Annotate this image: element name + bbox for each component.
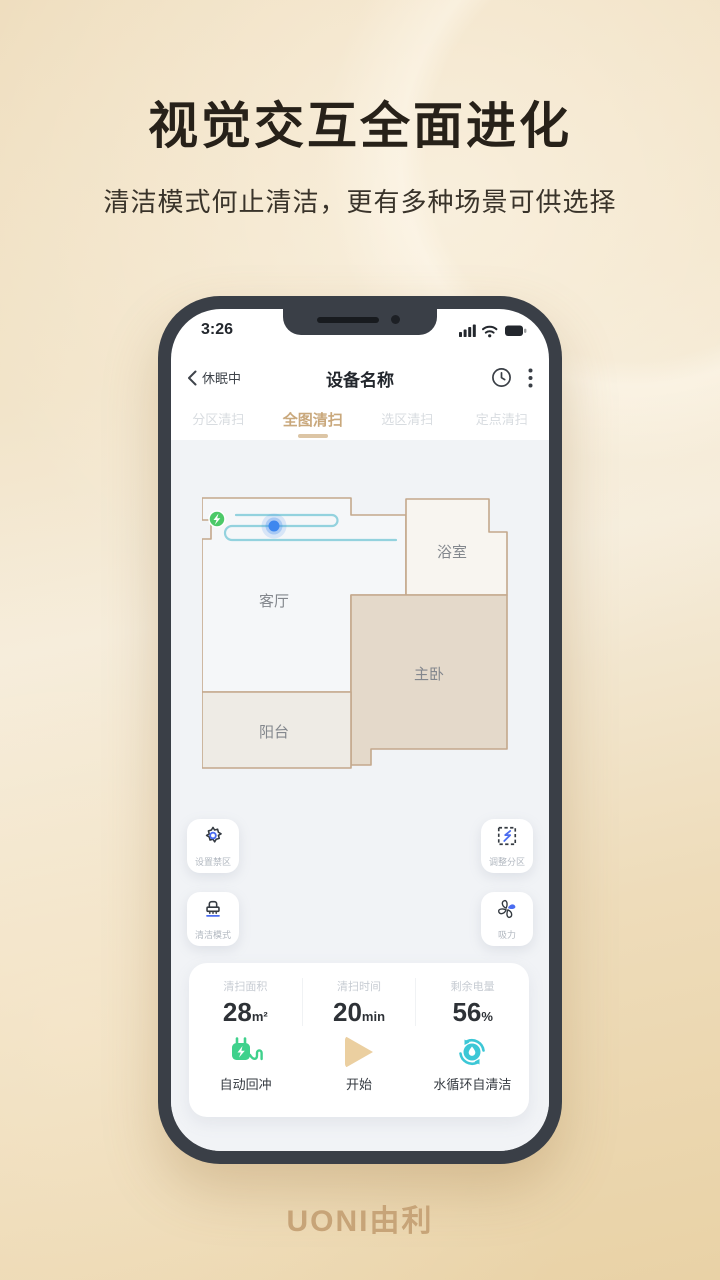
- status-time: 3:26: [201, 321, 233, 339]
- brush-icon: [202, 898, 224, 925]
- charging-dock-icon: [209, 511, 225, 527]
- phone-notch: [283, 309, 437, 335]
- phone-mockup: 3:26: [158, 296, 562, 1164]
- active-tab-indicator: [298, 434, 328, 438]
- floor-map[interactable]: 客厅 浴室 主卧 阳台: [202, 490, 512, 780]
- room-label-bathroom: 浴室: [437, 544, 467, 561]
- gear-icon: [202, 825, 224, 852]
- speaker-slot: [317, 317, 379, 323]
- room-label-balcony: 阳台: [259, 724, 289, 741]
- room-label-living: 客厅: [259, 593, 289, 610]
- stat-clean-time: 清扫时间 20min: [302, 978, 416, 1026]
- battery-value: 56: [452, 997, 481, 1027]
- clean-area-value: 28: [223, 997, 252, 1027]
- clean-mode-button[interactable]: 清洁模式: [187, 892, 239, 946]
- history-clock-icon[interactable]: [491, 367, 512, 393]
- marketing-page: 视觉交互全面进化 清洁模式何止清洁，更有多种场景可供选择 3:26: [0, 0, 720, 1280]
- stat-clean-area: 清扫面积 28m²: [189, 978, 302, 1026]
- tab-full-map-clean[interactable]: 全图清扫: [266, 406, 361, 440]
- wifi-icon: [483, 327, 496, 338]
- phone-screen: 3:26: [171, 309, 549, 1151]
- auto-recharge-button[interactable]: 自动回冲: [189, 1036, 302, 1093]
- page-title: 视觉交互全面进化: [0, 86, 720, 158]
- status-card: 清扫面积 28m² 清扫时间 20min 剩余电量: [189, 963, 529, 1117]
- stats-row: 清扫面积 28m² 清扫时间 20min 剩余电量: [189, 963, 529, 1026]
- play-icon: [345, 1036, 373, 1068]
- battery-icon: [505, 326, 526, 337]
- tab-select-area-clean[interactable]: 选区清扫: [360, 406, 455, 440]
- self-clean-button[interactable]: 水循环自清洁: [416, 1036, 529, 1093]
- status-icons: [459, 323, 527, 344]
- suction-button[interactable]: 吸力: [481, 892, 533, 946]
- nav-bar: 休眠中 设备名称: [171, 360, 549, 398]
- tab-spot-clean[interactable]: 定点清扫: [455, 406, 550, 440]
- more-kebab-icon[interactable]: [528, 368, 533, 393]
- front-camera: [391, 315, 400, 324]
- charge-plug-icon: [225, 1036, 267, 1068]
- no-go-zone-button[interactable]: 设置禁区: [187, 819, 239, 873]
- page-subtitle: 清洁模式何止清洁，更有多种场景可供选择: [0, 182, 720, 219]
- stat-battery: 剩余电量 56%: [415, 978, 529, 1026]
- actions-row: 自动回冲 开始: [189, 1036, 529, 1093]
- tab-zone-clean[interactable]: 分区清扫: [171, 406, 266, 440]
- adjust-partition-button[interactable]: 调整分区: [481, 819, 533, 873]
- fan-icon: [496, 898, 518, 925]
- clean-time-value: 20: [333, 997, 362, 1027]
- signal-bars-icon: [459, 325, 476, 338]
- robot-position-icon: [262, 514, 287, 539]
- brand-logo: UONI由利: [0, 1196, 720, 1240]
- self-clean-icon: [455, 1036, 489, 1068]
- map-panel: 客厅 浴室 主卧 阳台 设置禁区: [171, 440, 549, 1151]
- clean-mode-tabs: 分区清扫 全图清扫 选区清扫 定点清扫: [171, 406, 549, 440]
- start-button[interactable]: 开始: [302, 1036, 415, 1093]
- room-label-bedroom: 主卧: [414, 666, 444, 683]
- partition-icon: [496, 825, 518, 852]
